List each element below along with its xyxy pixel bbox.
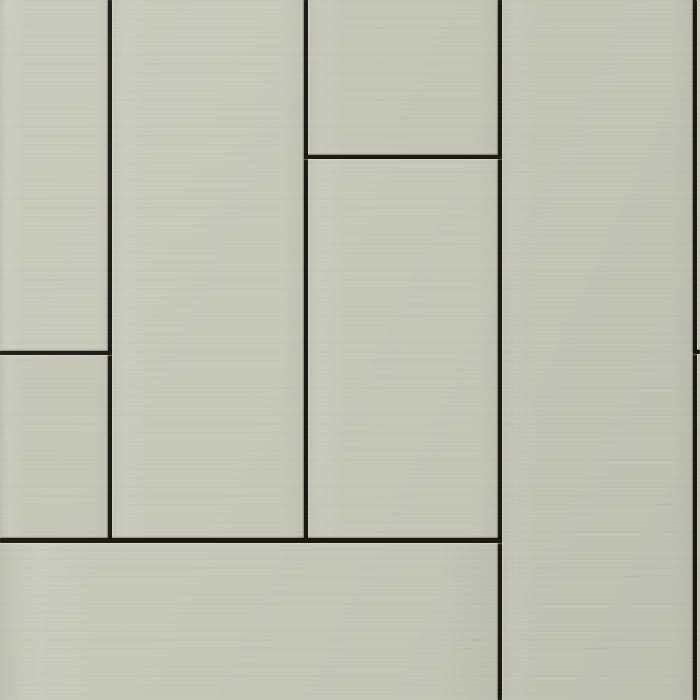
- horizontal-seam-col3: [304, 155, 502, 159]
- horizontal-seam-left: [0, 351, 112, 355]
- panel-left-top: [0, 0, 110, 353]
- panel-wall: [0, 0, 700, 700]
- panel-col3-top: [306, 0, 500, 157]
- horizontal-seam-right: [693, 350, 700, 354]
- horizontal-seam-bottom: [0, 538, 502, 543]
- panel-col3-bottom: [306, 157, 500, 540]
- panel-left-bottom: [0, 353, 110, 540]
- panel-col4-full: [500, 0, 695, 700]
- vertical-seam-1: [108, 0, 112, 543]
- panel-bottom-wide: [0, 540, 500, 700]
- vertical-seam-3: [498, 0, 502, 700]
- panel-col2-full: [110, 0, 306, 540]
- vertical-seam-2: [304, 0, 308, 543]
